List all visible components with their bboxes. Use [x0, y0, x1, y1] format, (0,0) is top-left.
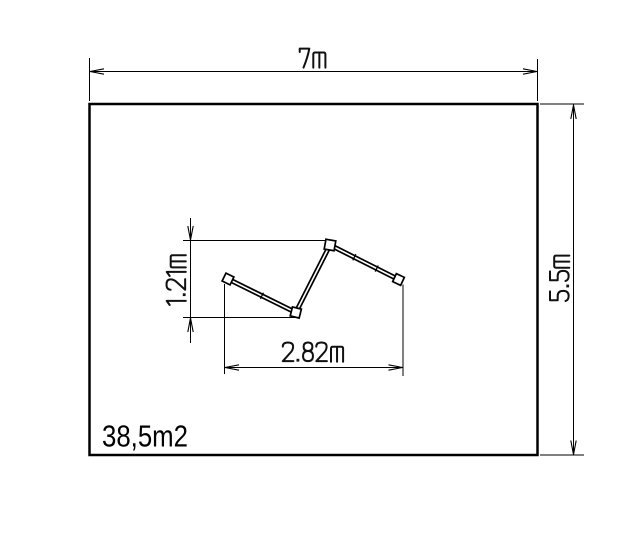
svg-text:38,5m2: 38,5m2	[102, 420, 188, 454]
